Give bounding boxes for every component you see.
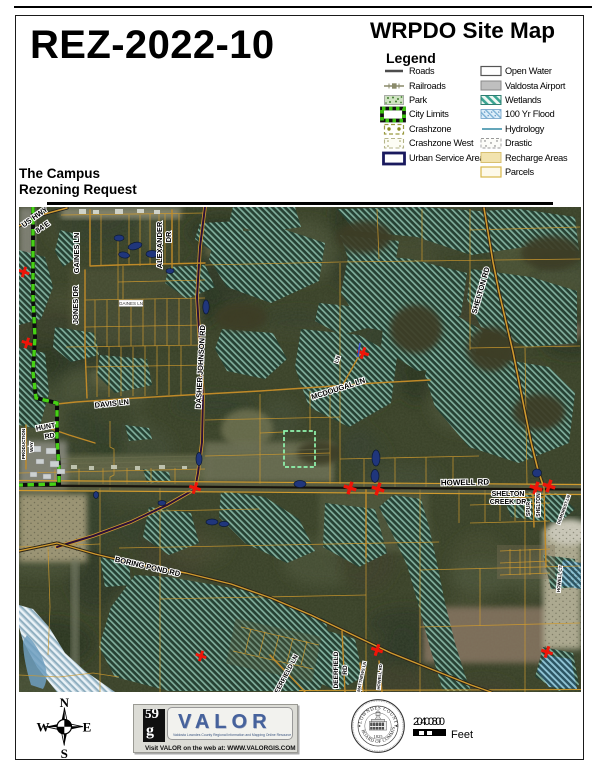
svg-text:E: E: [83, 720, 92, 735]
svg-text:SHELTON: SHELTON: [492, 491, 525, 498]
svg-text:GAINES LN: GAINES LN: [119, 301, 143, 306]
svg-text:PRODUCTION: PRODUCTION: [21, 429, 26, 459]
svg-text:HOWELL RD: HOWELL RD: [441, 478, 490, 488]
svg-text:JONES DR: JONES DR: [71, 285, 80, 324]
svg-text:1825: 1825: [374, 734, 384, 739]
svg-text:S: S: [61, 746, 68, 761]
svg-text:DR: DR: [164, 231, 173, 242]
svg-text:GAINES LN: GAINES LN: [72, 233, 81, 274]
svg-text:RD: RD: [342, 665, 349, 675]
svg-text:CREEK DR: CREEK DR: [490, 499, 527, 506]
svg-text:SPUR: SPUR: [526, 502, 532, 516]
svg-text:WAY: WAY: [29, 442, 34, 452]
svg-text:ALEXANDER: ALEXANDER: [155, 221, 164, 268]
svg-text:SHELTON: SHELTON: [536, 493, 542, 517]
svg-text:DEERFIELD: DEERFIELD: [333, 651, 340, 688]
